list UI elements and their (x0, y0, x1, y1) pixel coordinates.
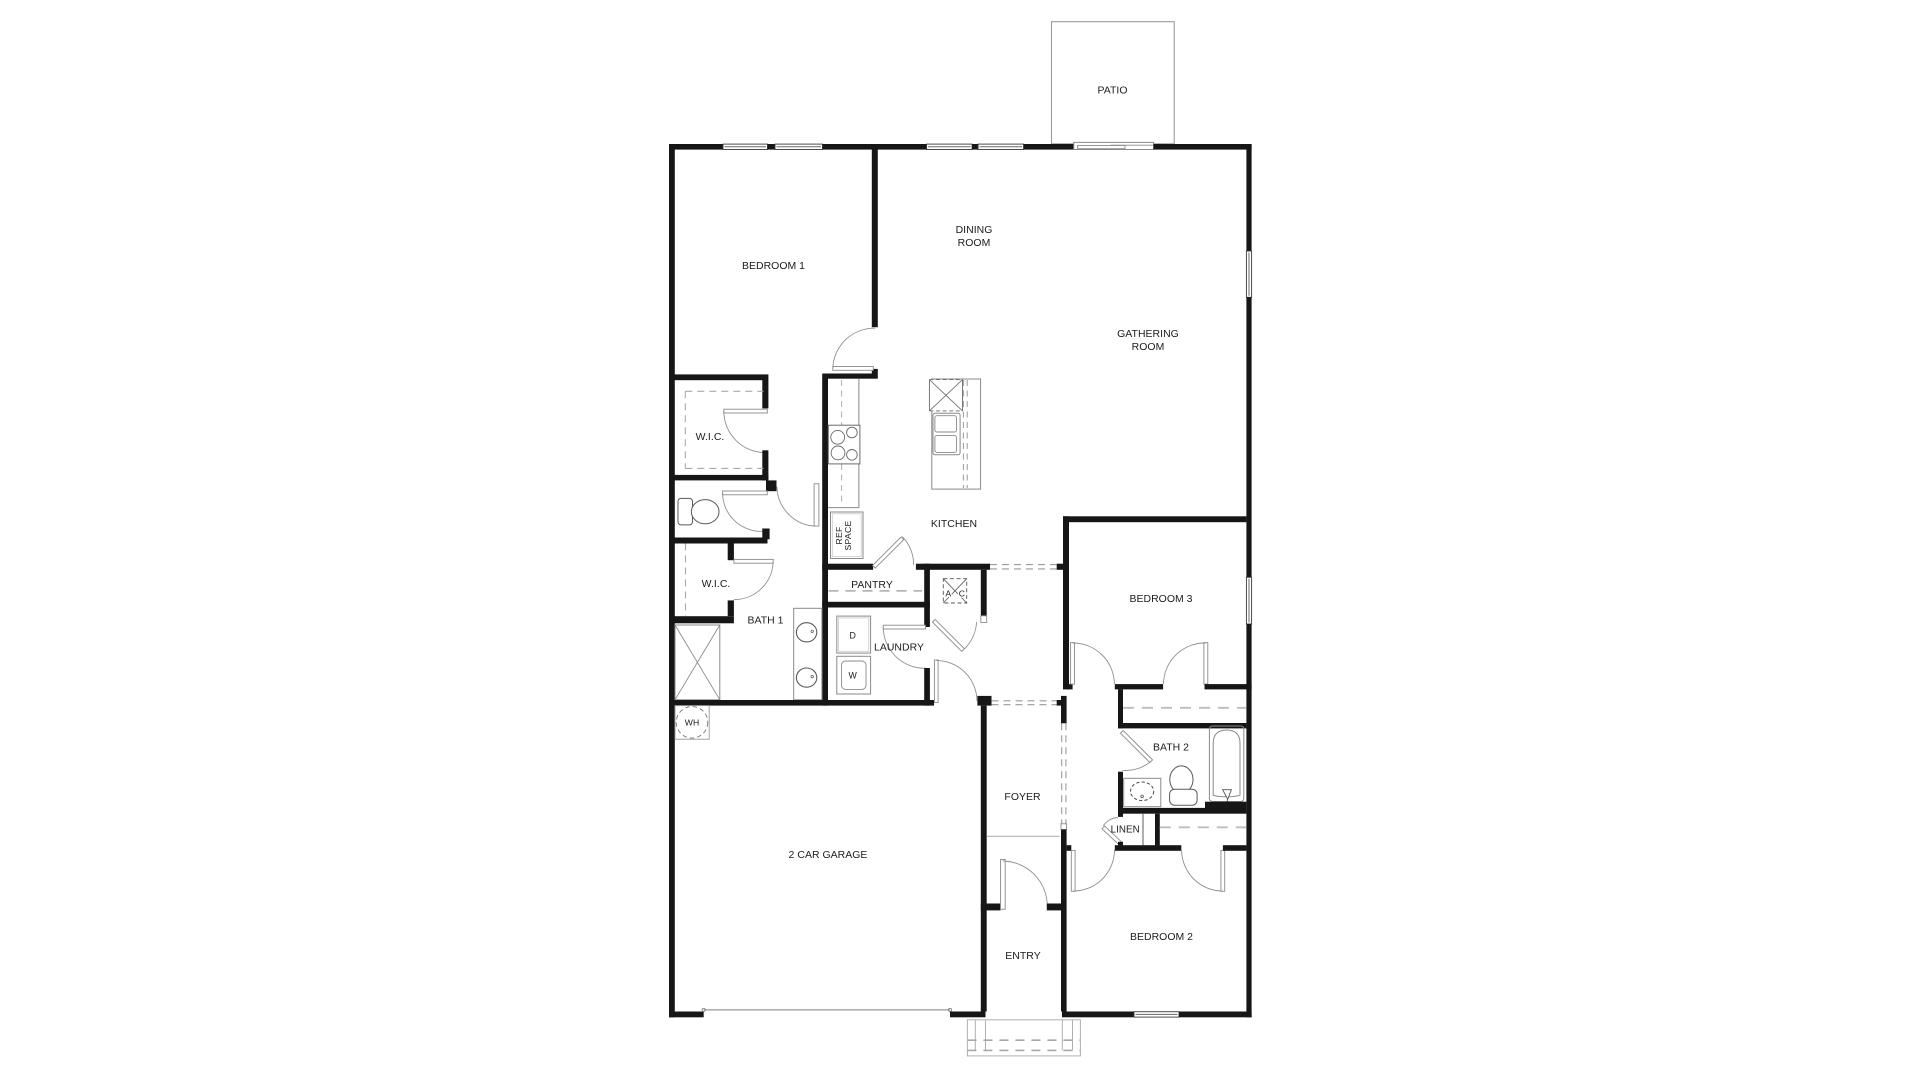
svg-text:BEDROOM 1: BEDROOM 1 (742, 261, 805, 272)
svg-text:2 CAR GARAGE: 2 CAR GARAGE (789, 850, 868, 861)
svg-text:A: A (945, 589, 951, 599)
svg-text:LAUNDRY: LAUNDRY (874, 642, 924, 653)
svg-text:FOYER: FOYER (1004, 792, 1041, 803)
svg-text:ROOM: ROOM (958, 238, 991, 249)
svg-text:C: C (959, 589, 965, 599)
svg-text:D: D (849, 630, 855, 640)
svg-text:BATH 2: BATH 2 (1153, 742, 1189, 753)
svg-text:GATHERING: GATHERING (1117, 329, 1179, 340)
svg-text:ENTRY: ENTRY (1005, 951, 1040, 962)
svg-text:KITCHEN: KITCHEN (931, 519, 977, 530)
svg-text:BEDROOM 3: BEDROOM 3 (1129, 594, 1192, 605)
svg-text:W.I.C.: W.I.C. (696, 432, 725, 443)
svg-text:DINING: DINING (956, 225, 993, 236)
svg-text:PATIO: PATIO (1097, 85, 1127, 96)
svg-text:BEDROOM 2: BEDROOM 2 (1130, 932, 1193, 943)
svg-text:WH: WH (685, 717, 699, 727)
svg-text:ROOM: ROOM (1132, 342, 1165, 353)
svg-text:LINEN: LINEN (1111, 825, 1140, 836)
svg-text:W: W (849, 671, 858, 681)
svg-text:PANTRY: PANTRY (851, 580, 893, 591)
svg-text:W.I.C.: W.I.C. (702, 579, 731, 590)
svg-text:BATH 1: BATH 1 (747, 615, 783, 626)
